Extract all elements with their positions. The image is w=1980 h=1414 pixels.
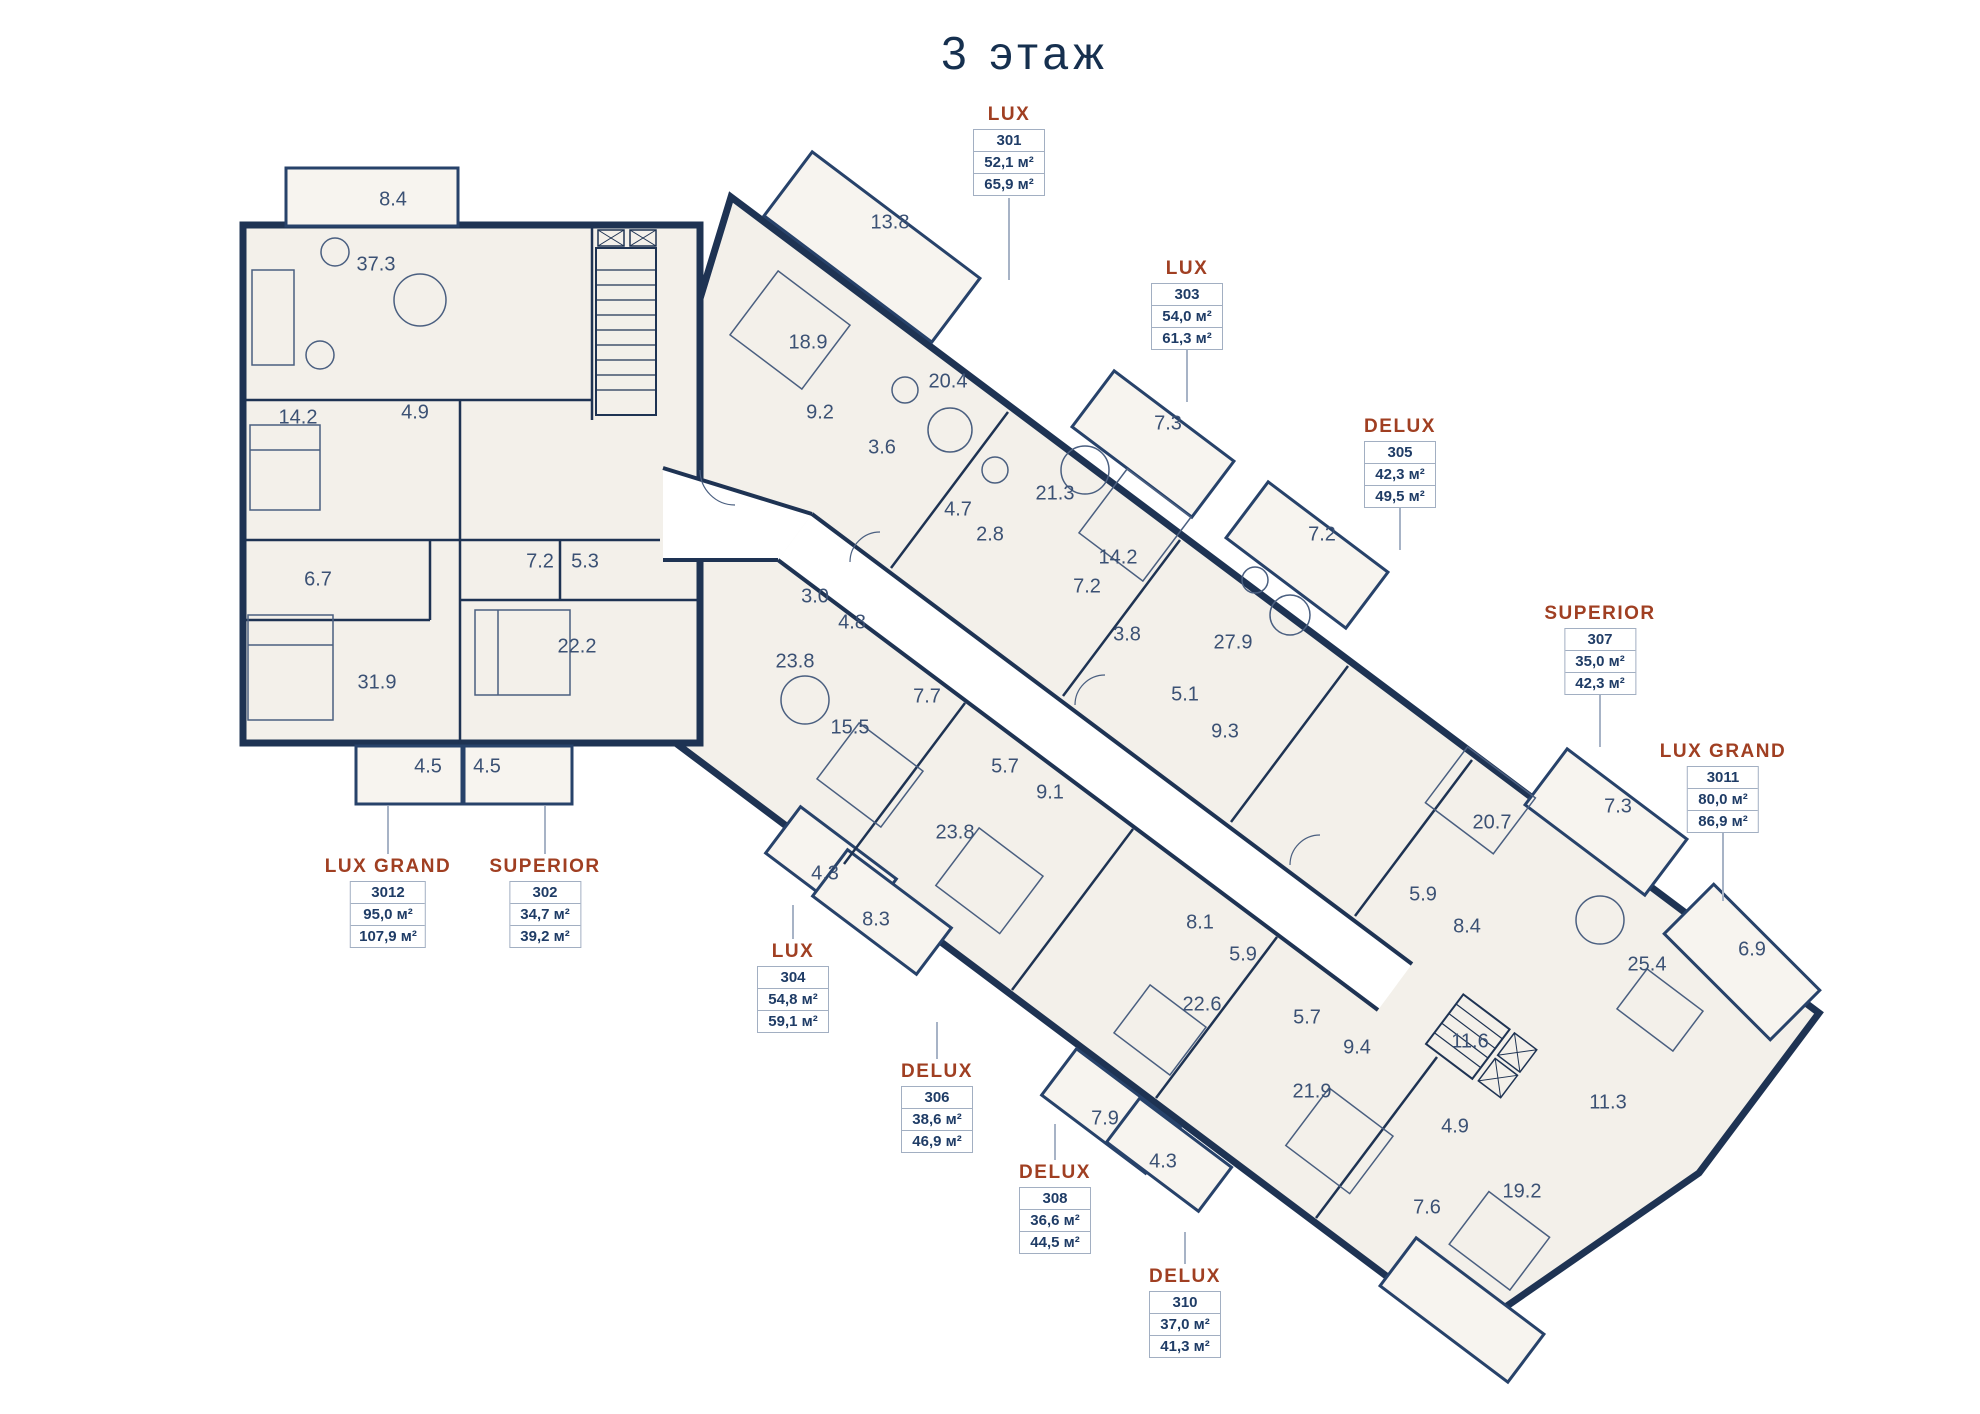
room-area-label: 25.4 [1628, 954, 1667, 977]
room-area-label: 11.6 [1451, 1031, 1488, 1054]
apartment-card-305[interactable]: 305 42,3 м² 49,5 м² [1364, 441, 1436, 508]
room-area-label: 14.2 [279, 407, 318, 430]
apartment-area-total: 46,9 м² [902, 1130, 972, 1152]
room-area-label: 5.3 [571, 551, 599, 574]
apartment-unit: 308 [1020, 1188, 1090, 1209]
apartment-label-3011: LUX GRAND 3011 80,0 м² 86,9 м² [1660, 741, 1786, 833]
room-area-label: 11.3 [1589, 1092, 1626, 1115]
leader-line [1599, 695, 1601, 747]
apartment-area-living: 80,0 м² [1688, 788, 1758, 810]
apartment-type: DELUX [1019, 1162, 1091, 1184]
apartment-label-308: DELUX 308 36,6 м² 44,5 м² [1019, 1162, 1091, 1254]
apartment-unit: 301 [974, 130, 1044, 151]
room-area-label: 7.2 [1073, 576, 1101, 599]
apartment-area-total: 107,9 м² [351, 925, 425, 947]
apartment-area-total: 41,3 м² [1150, 1335, 1220, 1357]
leader-line [1008, 198, 1010, 280]
apartment-unit: 303 [1152, 284, 1222, 305]
room-area-label: 7.7 [913, 686, 941, 709]
apartment-card-302[interactable]: 302 34,7 м² 39,2 м² [509, 881, 581, 948]
apartment-unit: 310 [1150, 1292, 1220, 1313]
room-area-label: 5.7 [991, 756, 1019, 779]
room-area-label: 9.4 [1343, 1037, 1371, 1060]
apartment-area-living: 37,0 м² [1150, 1313, 1220, 1335]
apartment-area-total: 59,1 м² [758, 1010, 828, 1032]
apartment-type: LUX [757, 941, 829, 963]
apartment-card-3011[interactable]: 3011 80,0 м² 86,9 м² [1687, 766, 1759, 833]
apartment-area-living: 38,6 м² [902, 1108, 972, 1130]
room-area-label: 7.3 [1604, 796, 1632, 819]
room-area-label: 14.2 [1099, 547, 1138, 570]
apartment-label-3012: LUX GRAND 3012 95,0 м² 107,9 м² [325, 856, 451, 948]
apartment-area-living: 36,6 м² [1020, 1209, 1090, 1231]
room-area-label: 22.2 [558, 636, 597, 659]
apartment-label-305: DELUX 305 42,3 м² 49,5 м² [1364, 416, 1436, 508]
room-area-label: 4.5 [473, 756, 501, 779]
apartment-unit: 306 [902, 1087, 972, 1108]
apartment-unit: 3012 [351, 882, 425, 903]
apartment-type: DELUX [1364, 416, 1436, 438]
room-area-label: 31.9 [358, 672, 397, 695]
apartment-type: SUPERIOR [1544, 603, 1655, 625]
apartment-area-total: 65,9 м² [974, 173, 1044, 195]
apartment-area-living: 54,0 м² [1152, 305, 1222, 327]
apartment-area-total: 86,9 м² [1688, 810, 1758, 832]
leader-line [1722, 833, 1724, 901]
floorplan-page: 3 этаж LUX 301 52,1 м² 65,9 м² LUX 303 5… [0, 0, 1980, 1414]
apartment-card-3012[interactable]: 3012 95,0 м² 107,9 м² [350, 881, 426, 948]
leader-line [1054, 1124, 1056, 1160]
room-area-label: 7.6 [1413, 1197, 1441, 1220]
room-area-label: 4.3 [811, 863, 839, 886]
apartment-type: LUX [973, 104, 1045, 126]
room-area-label: 4.8 [838, 612, 866, 635]
apartment-type: LUX GRAND [1660, 741, 1786, 763]
apartment-area-total: 61,3 м² [1152, 327, 1222, 349]
apartment-card-310[interactable]: 310 37,0 м² 41,3 м² [1149, 1291, 1221, 1358]
room-area-label: 7.2 [526, 551, 554, 574]
apartment-label-304: LUX 304 54,8 м² 59,1 м² [757, 941, 829, 1033]
apartment-area-living: 54,8 м² [758, 988, 828, 1010]
room-area-label: 27.9 [1214, 632, 1253, 655]
room-area-label: 9.1 [1036, 782, 1064, 805]
room-area-label: 13.8 [871, 212, 910, 235]
apartment-card-303[interactable]: 303 54,0 м² 61,3 м² [1151, 283, 1223, 350]
room-area-label: 5.1 [1171, 684, 1199, 707]
apartment-card-304[interactable]: 304 54,8 м² 59,1 м² [757, 966, 829, 1033]
room-area-label: 4.3 [1149, 1151, 1177, 1174]
room-area-label: 8.3 [862, 909, 890, 932]
page-title: 3 этаж [941, 26, 1109, 80]
leader-line [792, 905, 794, 939]
room-area-label: 8.1 [1186, 912, 1214, 935]
apartment-card-306[interactable]: 306 38,6 м² 46,9 м² [901, 1086, 973, 1153]
apartment-label-301: LUX 301 52,1 м² 65,9 м² [973, 104, 1045, 196]
apartment-area-living: 34,7 м² [510, 903, 580, 925]
leader-line [1399, 508, 1401, 550]
apartment-type: LUX GRAND [325, 856, 451, 878]
apartment-unit: 304 [758, 967, 828, 988]
room-area-label: 18.9 [789, 332, 828, 355]
apartment-area-total: 42,3 м² [1565, 672, 1635, 694]
leader-line [1184, 1232, 1186, 1264]
apartment-unit: 305 [1365, 442, 1435, 463]
room-area-label: 7.9 [1091, 1108, 1119, 1131]
room-area-label: 21.3 [1036, 483, 1075, 506]
apartment-area-living: 95,0 м² [351, 903, 425, 925]
apartment-area-total: 49,5 м² [1365, 485, 1435, 507]
room-area-label: 3.6 [868, 437, 896, 460]
room-area-label: 22.6 [1183, 994, 1222, 1017]
apartment-card-308[interactable]: 308 36,6 м² 44,5 м² [1019, 1187, 1091, 1254]
apartment-type: LUX [1151, 258, 1223, 280]
room-area-label: 19.2 [1503, 1181, 1542, 1204]
floorplan-drawing [0, 0, 1980, 1414]
apartment-label-310: DELUX 310 37,0 м² 41,3 м² [1149, 1266, 1221, 1358]
apartment-card-307[interactable]: 307 35,0 м² 42,3 м² [1564, 628, 1636, 695]
apartment-type: DELUX [1149, 1266, 1221, 1288]
apartment-label-303: LUX 303 54,0 м² 61,3 м² [1151, 258, 1223, 350]
room-area-label: 4.7 [944, 499, 972, 522]
room-area-label: 6.7 [304, 569, 332, 592]
room-area-label: 3.0 [801, 586, 829, 609]
room-area-label: 3.8 [1113, 624, 1141, 647]
room-area-label: 6.9 [1738, 939, 1766, 962]
room-area-label: 4.5 [414, 756, 442, 779]
apartment-unit: 307 [1565, 629, 1635, 650]
room-area-label: 37.3 [357, 254, 396, 277]
apartment-area-living: 52,1 м² [974, 151, 1044, 173]
apartment-area-total: 39,2 м² [510, 925, 580, 947]
apartment-area-total: 44,5 м² [1020, 1231, 1090, 1253]
apartment-label-307: SUPERIOR 307 35,0 м² 42,3 м² [1544, 603, 1655, 695]
apartment-card-301[interactable]: 301 52,1 м² 65,9 м² [973, 129, 1045, 196]
apartment-unit: 3011 [1688, 767, 1758, 788]
leader-line [936, 1022, 938, 1059]
apartment-type: DELUX [901, 1061, 973, 1083]
room-area-label: 9.2 [806, 402, 834, 425]
apartment-label-306: DELUX 306 38,6 м² 46,9 м² [901, 1061, 973, 1153]
leader-line [1186, 350, 1188, 402]
room-area-label: 20.4 [929, 371, 968, 394]
apartment-label-302: SUPERIOR 302 34,7 м² 39,2 м² [489, 856, 600, 948]
room-area-label: 23.8 [936, 822, 975, 845]
room-area-label: 8.4 [1453, 916, 1481, 939]
room-area-label: 9.3 [1211, 721, 1239, 744]
apartment-unit: 302 [510, 882, 580, 903]
room-area-label: 21.9 [1293, 1081, 1332, 1104]
room-area-label: 4.9 [1441, 1116, 1469, 1139]
room-area-label: 15.5 [831, 717, 870, 740]
room-area-label: 7.2 [1308, 524, 1336, 547]
room-area-label: 5.9 [1229, 944, 1257, 967]
apartment-type: SUPERIOR [489, 856, 600, 878]
room-area-label: 20.7 [1473, 812, 1512, 835]
room-area-label: 5.7 [1293, 1007, 1321, 1030]
apartment-area-living: 42,3 м² [1365, 463, 1435, 485]
leader-line [544, 806, 546, 854]
leader-line [387, 806, 389, 854]
room-area-label: 5.9 [1409, 884, 1437, 907]
room-area-label: 2.8 [976, 524, 1004, 547]
apartment-area-living: 35,0 м² [1565, 650, 1635, 672]
room-area-label: 4.9 [401, 402, 429, 425]
room-area-label: 23.8 [776, 651, 815, 674]
room-area-label: 7.3 [1154, 413, 1182, 436]
room-area-label: 8.4 [379, 189, 407, 212]
